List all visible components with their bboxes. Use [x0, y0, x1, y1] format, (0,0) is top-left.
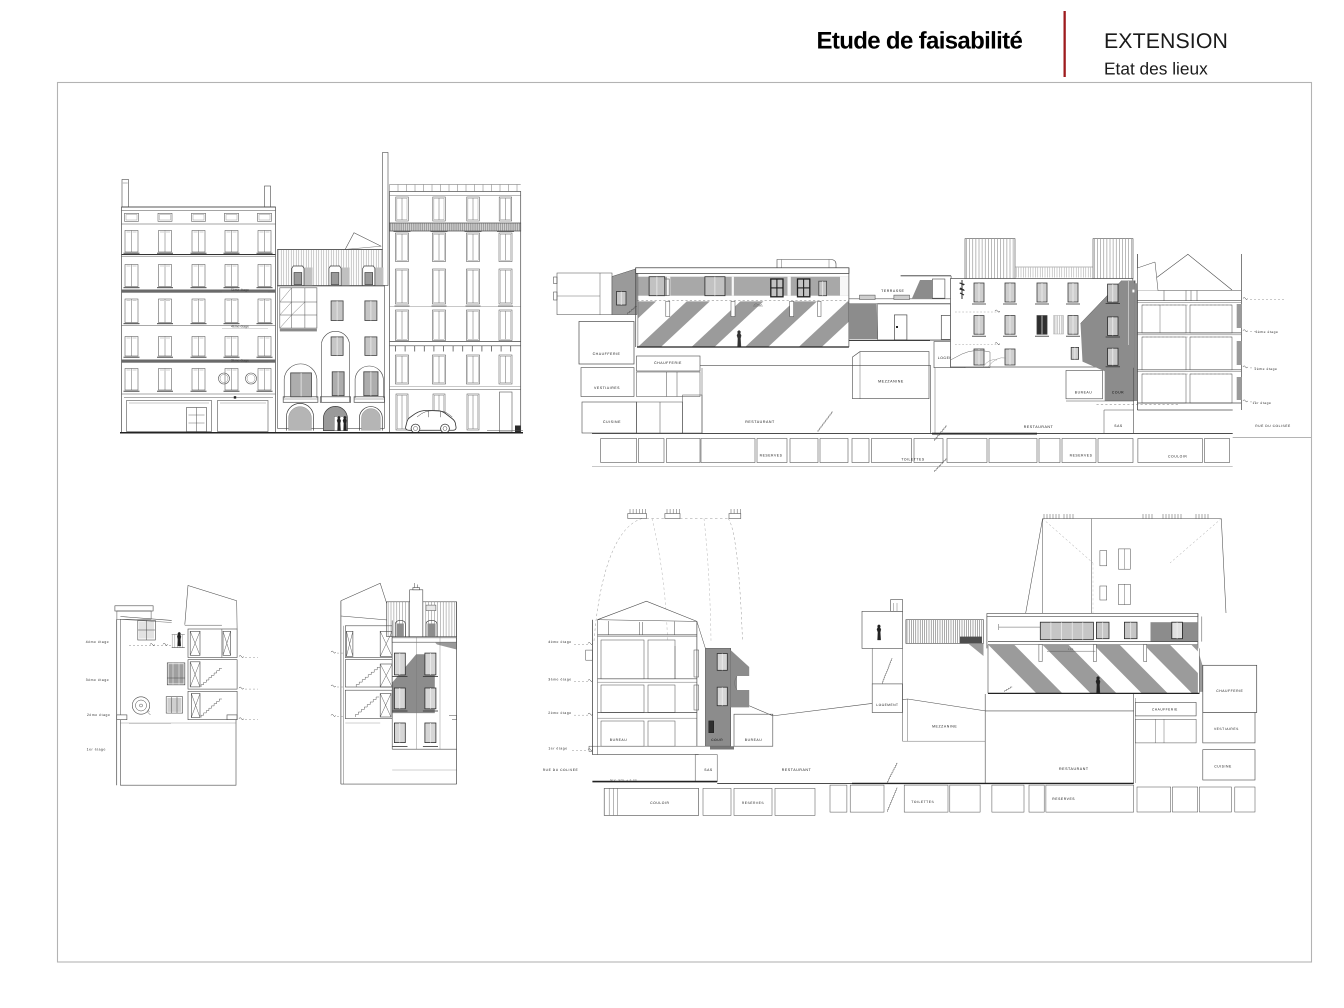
svg-text:CUISINE: CUISINE [1214, 764, 1232, 768]
svg-text:Etude de faisabilité: Etude de faisabilité [817, 28, 1023, 55]
svg-text:SAS: SAS [704, 768, 713, 772]
svg-text:1er étage: 1er étage [548, 746, 567, 750]
svg-text:3ème étage: 3ème étage [1256, 330, 1279, 334]
svg-text:COULOIR: COULOIR [1168, 455, 1187, 459]
svg-text:RUE DU COLISEE: RUE DU COLISEE [543, 768, 579, 772]
svg-text:RESERVES: RESERVES [742, 801, 765, 805]
svg-text:5ème étage: 5ème étage [231, 288, 249, 292]
svg-text:SAS: SAS [1114, 424, 1123, 428]
svg-text:MEZZANINE: MEZZANINE [932, 724, 957, 728]
svg-text:2ème étage: 2ème étage [87, 713, 110, 717]
svg-text:LOGEMENT: LOGEMENT [876, 703, 898, 707]
svg-text:NIV. SOL + 0.00: NIV. SOL + 0.00 [610, 779, 637, 782]
svg-text:COUR: COUR [711, 738, 723, 742]
svg-text:RESTAURANT: RESTAURANT [1024, 425, 1054, 429]
svg-text:CHAUFFERIE: CHAUFFERIE [593, 352, 621, 356]
svg-text:2ème étage: 2ème étage [548, 711, 571, 715]
svg-text:3ème étage: 3ème étage [86, 678, 109, 682]
svg-text:MEZZANINE: MEZZANINE [878, 380, 904, 384]
svg-text:100: 100 [1068, 648, 1074, 651]
svg-text:EXTENSION: EXTENSION [1104, 29, 1228, 53]
svg-text:BUREAU: BUREAU [745, 738, 762, 742]
svg-text:COUR: COUR [1112, 391, 1124, 395]
svg-text:RESTAURANT: RESTAURANT [782, 768, 812, 772]
svg-text:4ème étage: 4ème étage [86, 640, 109, 644]
svg-text:BUREAU: BUREAU [1075, 391, 1092, 395]
svg-text:Etat des lieux: Etat des lieux [1104, 59, 1208, 79]
svg-text:VESTIAIRES: VESTIAIRES [1214, 727, 1239, 731]
svg-text:TERRASSE: TERRASSE [881, 289, 904, 293]
svg-text:4ème étage: 4ème étage [231, 325, 249, 329]
svg-text:CHAUFFERIE: CHAUFFERIE [1152, 708, 1178, 712]
svg-text:VESTIAIRES: VESTIAIRES [594, 386, 620, 390]
svg-text:RESERVES: RESERVES [1070, 454, 1093, 458]
svg-text:1er étage: 1er étage [87, 747, 106, 751]
svg-text:CHAUFFERIE: CHAUFFERIE [1216, 689, 1243, 693]
svg-text:RESERVES: RESERVES [1052, 797, 1075, 801]
svg-text:BUREAU: BUREAU [610, 738, 627, 742]
svg-text:CHAUFFERIE: CHAUFFERIE [654, 361, 682, 365]
svg-text:TOILETTES: TOILETTES [901, 458, 925, 462]
svg-text:3ème étage: 3ème étage [548, 677, 571, 681]
svg-text:1er étage: 1er étage [1253, 401, 1272, 405]
svg-text:RESTAURANT: RESTAURANT [1059, 767, 1089, 771]
svg-text:4ème étage: 4ème étage [548, 640, 571, 644]
svg-text:RESTAURANT: RESTAURANT [745, 420, 775, 424]
svg-text:RUE DU COLISEE: RUE DU COLISEE [1255, 424, 1291, 428]
svg-text:TOILETTES: TOILETTES [911, 800, 934, 804]
svg-text:3ème étage: 3ème étage [231, 359, 249, 363]
svg-text:COULOIR: COULOIR [650, 801, 669, 805]
svg-text:CUISINE: CUISINE [603, 420, 621, 424]
svg-text:RESERVES: RESERVES [760, 454, 783, 458]
svg-text:2ème étage: 2ème étage [1255, 367, 1278, 371]
